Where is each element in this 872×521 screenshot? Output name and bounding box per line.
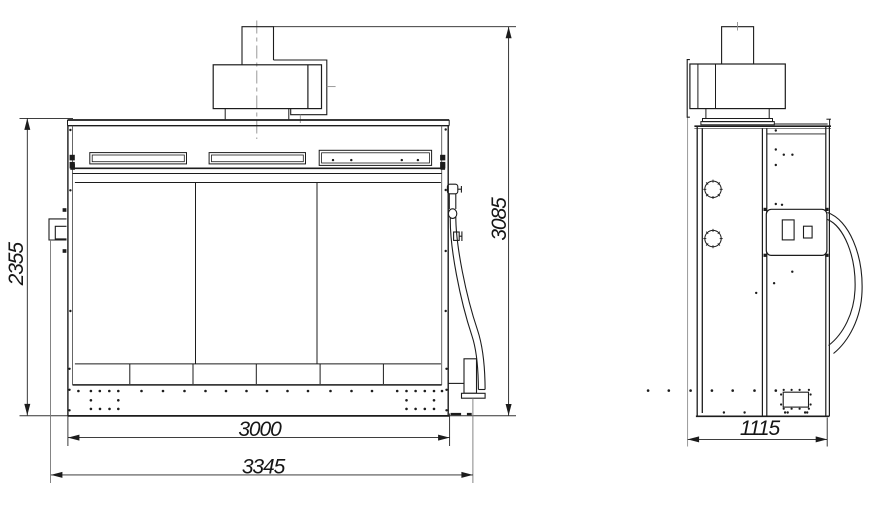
svg-text:3085: 3085 xyxy=(488,197,511,241)
svg-text:3345: 3345 xyxy=(242,456,286,479)
svg-text:2355: 2355 xyxy=(5,242,28,287)
svg-text:1115: 1115 xyxy=(740,417,781,440)
svg-text:3000: 3000 xyxy=(238,418,282,441)
